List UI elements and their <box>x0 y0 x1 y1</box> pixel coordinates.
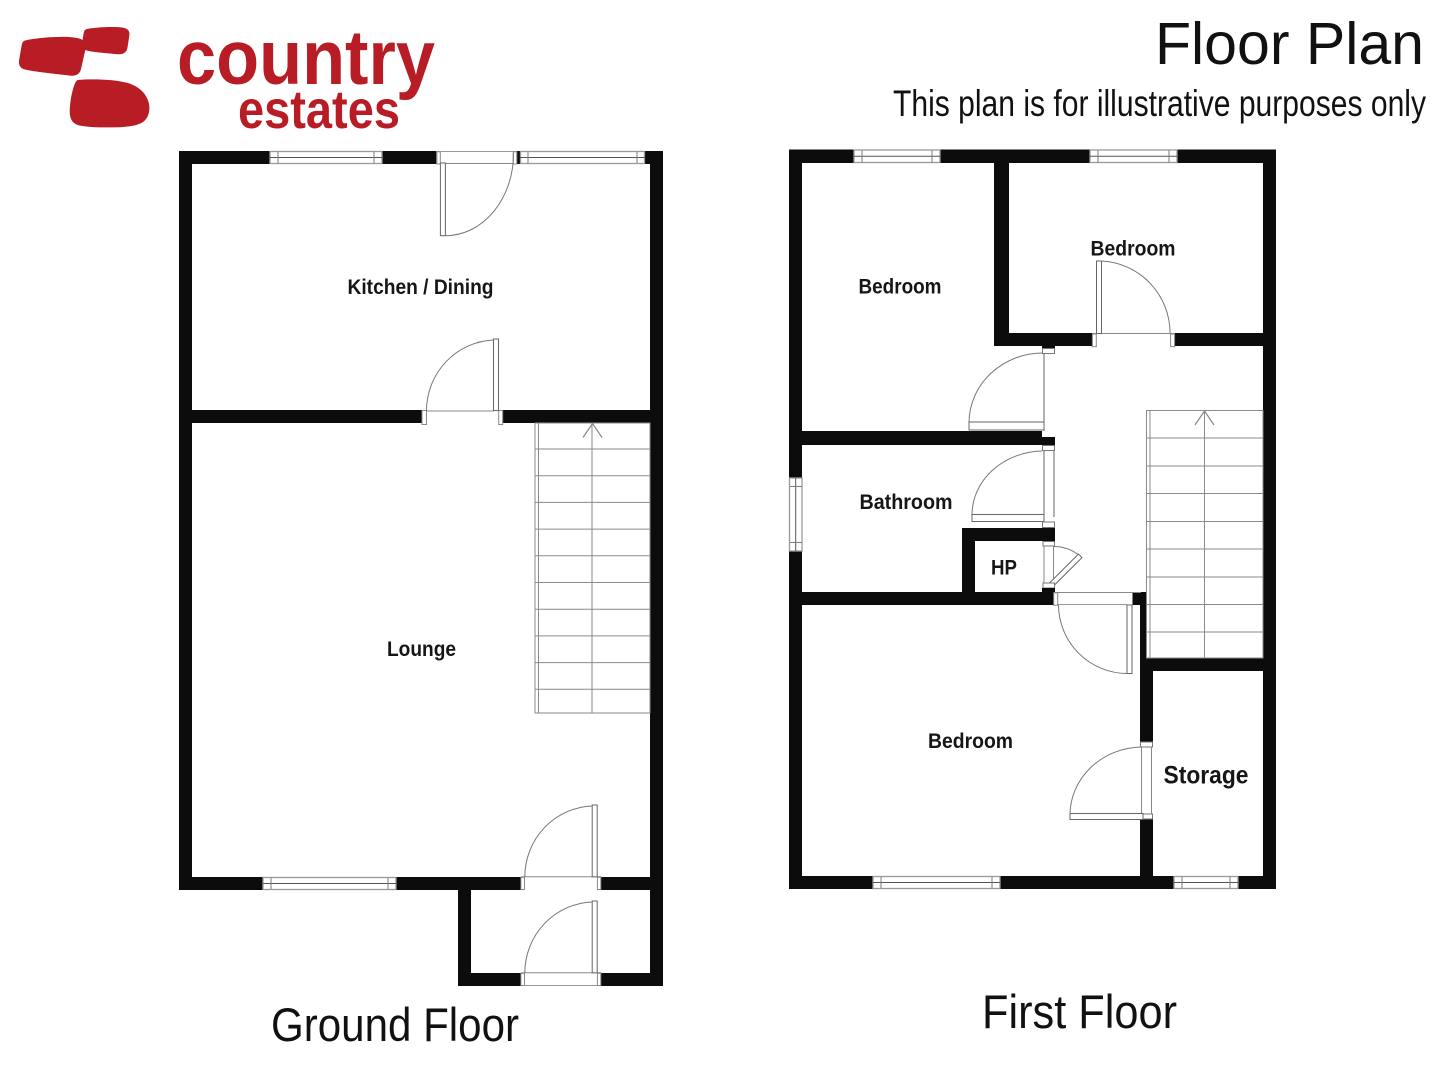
svg-text:Storage: Storage <box>1164 762 1249 790</box>
svg-text:First Floor: First Floor <box>982 985 1177 1038</box>
svg-text:This plan is for illustrative: This plan is for illustrative purposes o… <box>893 83 1426 124</box>
svg-text:Bedroom: Bedroom <box>928 730 1013 753</box>
svg-text:Floor Plan: Floor Plan <box>1155 11 1424 77</box>
svg-text:Bathroom: Bathroom <box>860 491 953 514</box>
svg-text:Bedroom: Bedroom <box>1091 238 1176 261</box>
svg-text:Kitchen / Dining: Kitchen / Dining <box>348 276 494 299</box>
svg-text:Lounge: Lounge <box>387 638 456 661</box>
svg-text:estates: estates <box>238 80 400 140</box>
svg-text:Bedroom: Bedroom <box>859 276 942 299</box>
svg-text:Ground Floor: Ground Floor <box>271 998 519 1051</box>
svg-text:HP: HP <box>991 557 1017 580</box>
